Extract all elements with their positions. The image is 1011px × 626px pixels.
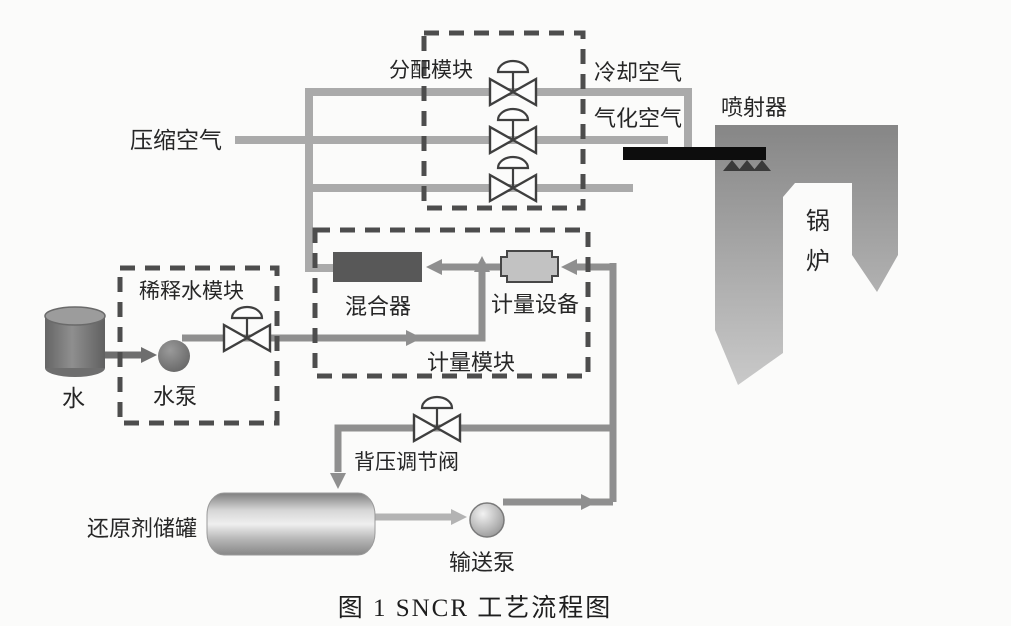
pipe-distribution-riser [305, 88, 335, 268]
atomizing-air-valve-icon [490, 109, 536, 153]
label-cooling-air: 冷却空气 [594, 61, 682, 85]
label-water-pump: 水泵 [153, 385, 197, 409]
label-atomizing-air: 气化空气 [594, 107, 682, 131]
label-transfer-pump: 输送泵 [449, 551, 515, 575]
arrow-into-mixer [426, 259, 442, 275]
sncr-process-flow-diagram: 压缩空气 分配模块 冷却空气 气化空气 喷射器 锅炉 稀释水模块 水 水泵 混合… [0, 0, 1011, 626]
arrow-pump-discharge [581, 494, 597, 510]
mixer-block [333, 252, 422, 282]
back-pressure-valve-icon [414, 397, 460, 441]
arrow-return-to-tank [330, 473, 346, 489]
label-compressed-air: 压缩空气 [130, 128, 222, 153]
label-metering-device: 计量设备 [491, 293, 579, 317]
label-reducing-agent-tank: 还原剂储罐 [87, 517, 197, 541]
dilution-water-valve-icon [224, 307, 270, 351]
transfer-pump-shape [470, 503, 504, 537]
arrow-into-metering-device [561, 259, 577, 275]
label-distribution-module: 分配模块 [389, 59, 473, 82]
label-dilution-water-module: 稀释水模块 [139, 280, 244, 303]
label-back-pressure-valve: 背压调节阀 [354, 451, 459, 474]
arrow-water-line [406, 330, 422, 346]
water-pump-shape [158, 340, 190, 372]
injector-lance-bar [623, 147, 766, 160]
cooling-air-valve-icon [490, 61, 536, 105]
arrow-tank-outlet [451, 509, 467, 525]
water-tank [45, 307, 105, 377]
label-boiler: 锅炉 [801, 208, 827, 288]
label-injector: 喷射器 [721, 96, 787, 120]
label-water: 水 [62, 386, 85, 411]
mixture-line-valve-icon [490, 157, 536, 201]
label-metering-module: 计量模块 [427, 351, 515, 375]
figure-caption: 图 1 SNCR 工艺流程图 [280, 588, 670, 624]
metering-device-block [501, 251, 558, 282]
reducing-agent-tank-shape [207, 493, 375, 555]
arrow-water-to-pump [141, 347, 157, 363]
label-mixer: 混合器 [345, 295, 411, 319]
